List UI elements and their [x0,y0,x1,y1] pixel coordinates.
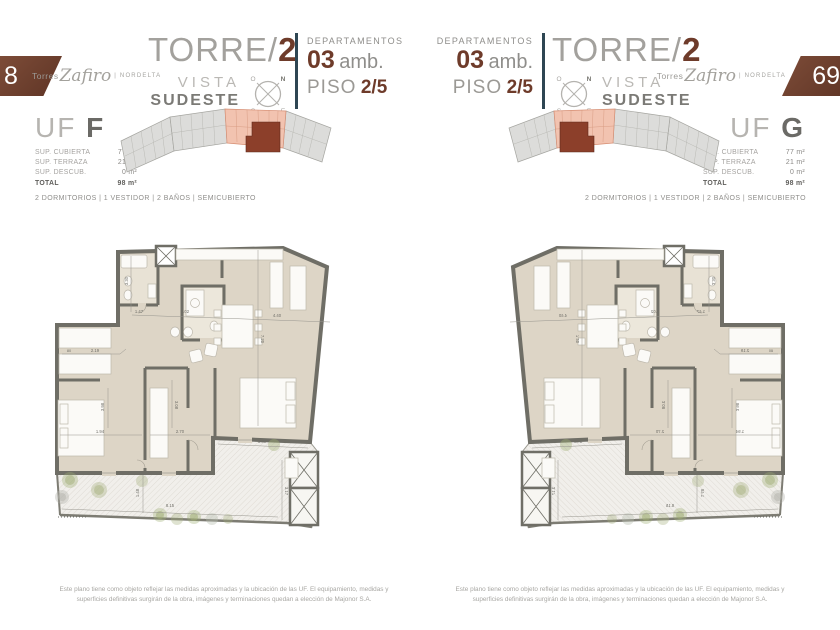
piso-value: 2/5 [361,77,387,98]
svg-text:7.20: 7.20 [575,335,580,344]
departamentos-label: DEPARTAMENTOS [307,36,425,46]
features-g: 2 DORMITORIOS | 1 VESTIDOR | 2 BAÑOS | S… [585,195,806,202]
tower-prefix: TORRE/ [148,31,278,68]
svg-text:8.15: 8.15 [665,503,674,508]
svg-text:1.48: 1.48 [135,488,140,497]
svg-text:N: N [587,76,592,83]
svg-text:3.98: 3.98 [100,402,105,411]
departamentos-block-right: DEPARTAMENTOS 03 amb. PISO 2/5 [415,36,533,100]
svg-text:2.70: 2.70 [655,429,664,434]
keyplan-f [118,106,333,188]
svg-text:3.17: 3.17 [284,487,289,496]
svg-text:2.70: 2.70 [176,429,185,434]
uf-label: UF [35,112,76,143]
floor-plan-g: 3.30 1.47 2.02 4.40 7.20 80 2.19 3.08 1.… [458,228,798,546]
tower-title-left: TORRE/2 VISTA SUDESTE O N S E [148,33,290,116]
svg-text:1.48: 1.48 [700,488,705,497]
uf-letter-f: F [86,112,105,143]
svg-text:7.20: 7.20 [260,335,265,344]
piso-label: PISO [307,77,356,98]
floor-plan-f: 3.30 1.47 2.02 4.40 7.20 80 2.19 3.08 1.… [42,228,382,546]
svg-text:4.40: 4.40 [273,313,282,318]
keyplan-building-arc [118,106,333,188]
brochure-page: 8 Torres Zafiro | NORDELTA TORRE/2 VISTA… [0,0,840,630]
svg-text:3.08: 3.08 [174,401,179,410]
page-number-ribbon-right: 69 [782,56,840,96]
page-number-left: 8 [4,62,18,90]
svg-text:4.40: 4.40 [558,313,567,318]
header-divider-left [295,33,298,109]
svg-text:3.30: 3.30 [124,276,129,285]
svg-text:3.30: 3.30 [711,276,716,285]
amb-suffix: amb. [339,51,383,73]
elevator-shaft [156,246,176,266]
svg-text:O: O [250,76,255,83]
svg-text:1.47: 1.47 [696,309,705,314]
svg-text:3.08: 3.08 [661,401,666,410]
brand-logo-right: Torres Zafiro | NORDELTA [694,66,786,86]
svg-text:2.02: 2.02 [181,309,190,314]
brand-logo-left: Torres Zafiro | NORDELTA [32,66,161,86]
svg-text:2.02: 2.02 [650,309,659,314]
svg-text:1.94: 1.94 [735,429,744,434]
vista-label: VISTA [178,74,240,91]
disclaimer-left: Este plano tiene como objeto reflejar la… [56,585,392,606]
svg-text:1.47: 1.47 [135,309,144,314]
svg-text:8.15: 8.15 [166,503,175,508]
svg-text:1.94: 1.94 [96,429,105,434]
uf-letter-g: G [781,112,805,143]
page-number-right: 69 [812,62,840,90]
svg-text:2.19: 2.19 [91,348,100,353]
svg-text:N: N [281,76,286,83]
elevator-shaft [664,246,684,266]
svg-text:80: 80 [67,349,71,353]
svg-text:3.98: 3.98 [735,402,740,411]
brand-zafiro: Zafiro [60,66,112,86]
keyplan-g [507,106,722,188]
features-f: 2 DORMITORIOS | 1 VESTIDOR | 2 BAÑOS | S… [35,195,256,202]
brand-torres: Torres [32,71,59,81]
header-divider-right [542,33,545,109]
svg-text:2.19: 2.19 [740,348,749,353]
disclaimer-right: Este plano tiene como objeto reflejar la… [452,585,788,606]
svg-text:3.80: 3.80 [573,439,582,444]
svg-text:3.80: 3.80 [258,439,267,444]
floor-plan-drawing: 3.30 1.47 2.02 4.40 7.20 80 2.19 3.08 1.… [458,228,798,546]
floor-plan-drawing: 3.30 1.47 2.02 4.40 7.20 80 2.19 3.08 1.… [42,228,382,546]
svg-text:3.17: 3.17 [551,487,556,496]
svg-text:80: 80 [769,349,773,353]
departamentos-block-left: DEPARTAMENTOS 03 amb. PISO 2/5 [307,36,425,100]
amb-number: 03 [307,46,335,74]
svg-text:O: O [556,76,561,83]
keyplan-building-arc [507,106,722,188]
